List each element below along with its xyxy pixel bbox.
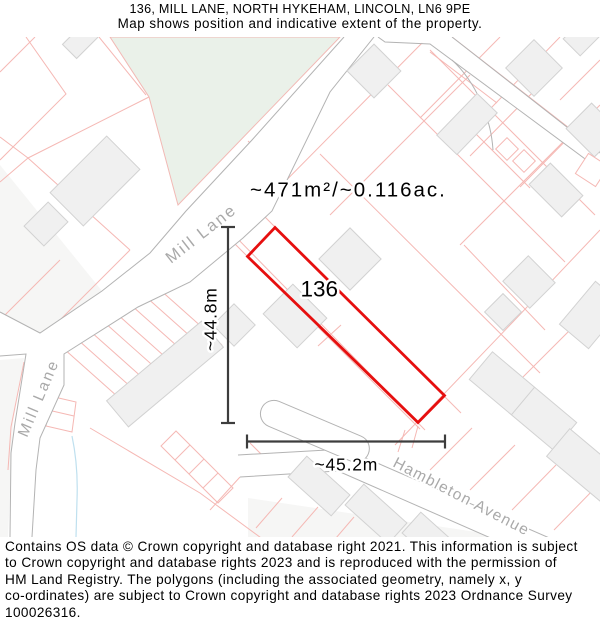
- svg-text:~44.8m: ~44.8m: [201, 287, 221, 351]
- svg-text:~45.2m: ~45.2m: [315, 455, 379, 475]
- svg-text:~471m²/~0.116ac.: ~471m²/~0.116ac.: [250, 179, 447, 202]
- svg-text:136: 136: [301, 277, 339, 302]
